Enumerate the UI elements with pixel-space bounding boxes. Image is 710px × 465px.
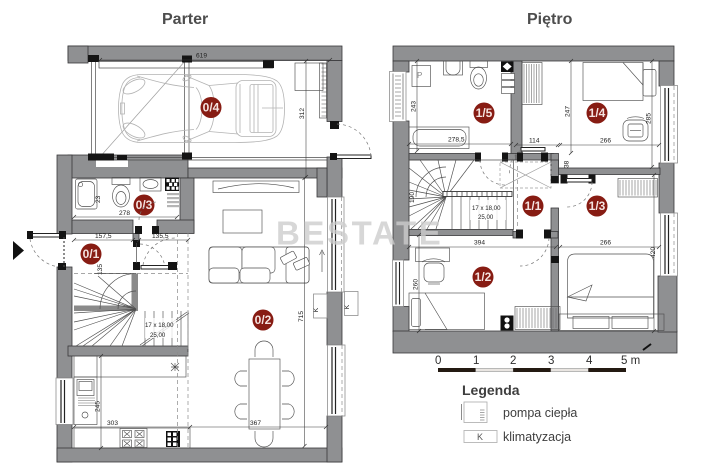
svg-text:157,5: 157,5 [95, 233, 112, 240]
svg-text:278,5: 278,5 [448, 137, 465, 144]
svg-text:25,00: 25,00 [150, 332, 166, 339]
svg-text:0/3: 0/3 [136, 198, 153, 212]
svg-text:394: 394 [474, 240, 485, 247]
svg-text:278: 278 [119, 210, 130, 217]
svg-text:0/2: 0/2 [255, 313, 272, 327]
svg-text:420: 420 [650, 247, 657, 258]
svg-text:0/4: 0/4 [203, 101, 220, 115]
svg-text:1/4: 1/4 [589, 106, 606, 120]
svg-text:3: 3 [548, 355, 554, 367]
svg-text:1: 1 [473, 355, 479, 367]
svg-text:1/1: 1/1 [525, 199, 542, 213]
svg-text:K: K [344, 304, 351, 309]
svg-text:Piętro: Piętro [527, 11, 573, 28]
svg-text:K: K [313, 307, 320, 312]
svg-text:BESTATE: BESTATE [276, 215, 443, 252]
svg-text:303: 303 [107, 420, 118, 427]
svg-text:P: P [417, 71, 422, 80]
svg-text:25,00: 25,00 [478, 214, 494, 221]
svg-text:285: 285 [646, 113, 653, 124]
svg-text:38: 38 [564, 160, 571, 168]
svg-text:Legenda: Legenda [462, 382, 520, 398]
svg-text:1/3: 1/3 [589, 199, 606, 213]
svg-text:243: 243 [411, 101, 418, 112]
svg-text:245: 245 [95, 401, 102, 412]
svg-text:619: 619 [196, 53, 207, 60]
svg-text:260: 260 [413, 279, 420, 290]
svg-text:17 x 18,00: 17 x 18,00 [472, 205, 501, 212]
svg-text:247: 247 [565, 106, 572, 117]
svg-text:K: K [477, 432, 483, 442]
svg-text:1/2: 1/2 [475, 270, 492, 284]
svg-text:114: 114 [529, 138, 540, 145]
svg-text:190: 190 [409, 192, 416, 203]
svg-text:367: 367 [250, 420, 261, 427]
svg-text:23: 23 [95, 195, 102, 203]
svg-text:5 m: 5 m [621, 355, 640, 367]
svg-text:17 x 18,00: 17 x 18,00 [145, 322, 174, 329]
svg-text:0: 0 [435, 355, 441, 367]
svg-text:klimatyzacja: klimatyzacja [503, 430, 571, 444]
svg-text:Parter: Parter [162, 11, 208, 28]
svg-text:266: 266 [600, 138, 611, 145]
svg-text:4: 4 [586, 355, 593, 367]
svg-text:715: 715 [298, 311, 305, 322]
svg-text:312: 312 [299, 108, 306, 119]
svg-text:266: 266 [600, 240, 611, 247]
svg-text:1/5: 1/5 [476, 106, 493, 120]
svg-text:pompa ciepła: pompa ciepła [503, 406, 577, 420]
svg-text:0/1: 0/1 [83, 247, 100, 261]
svg-text:2: 2 [510, 355, 516, 367]
